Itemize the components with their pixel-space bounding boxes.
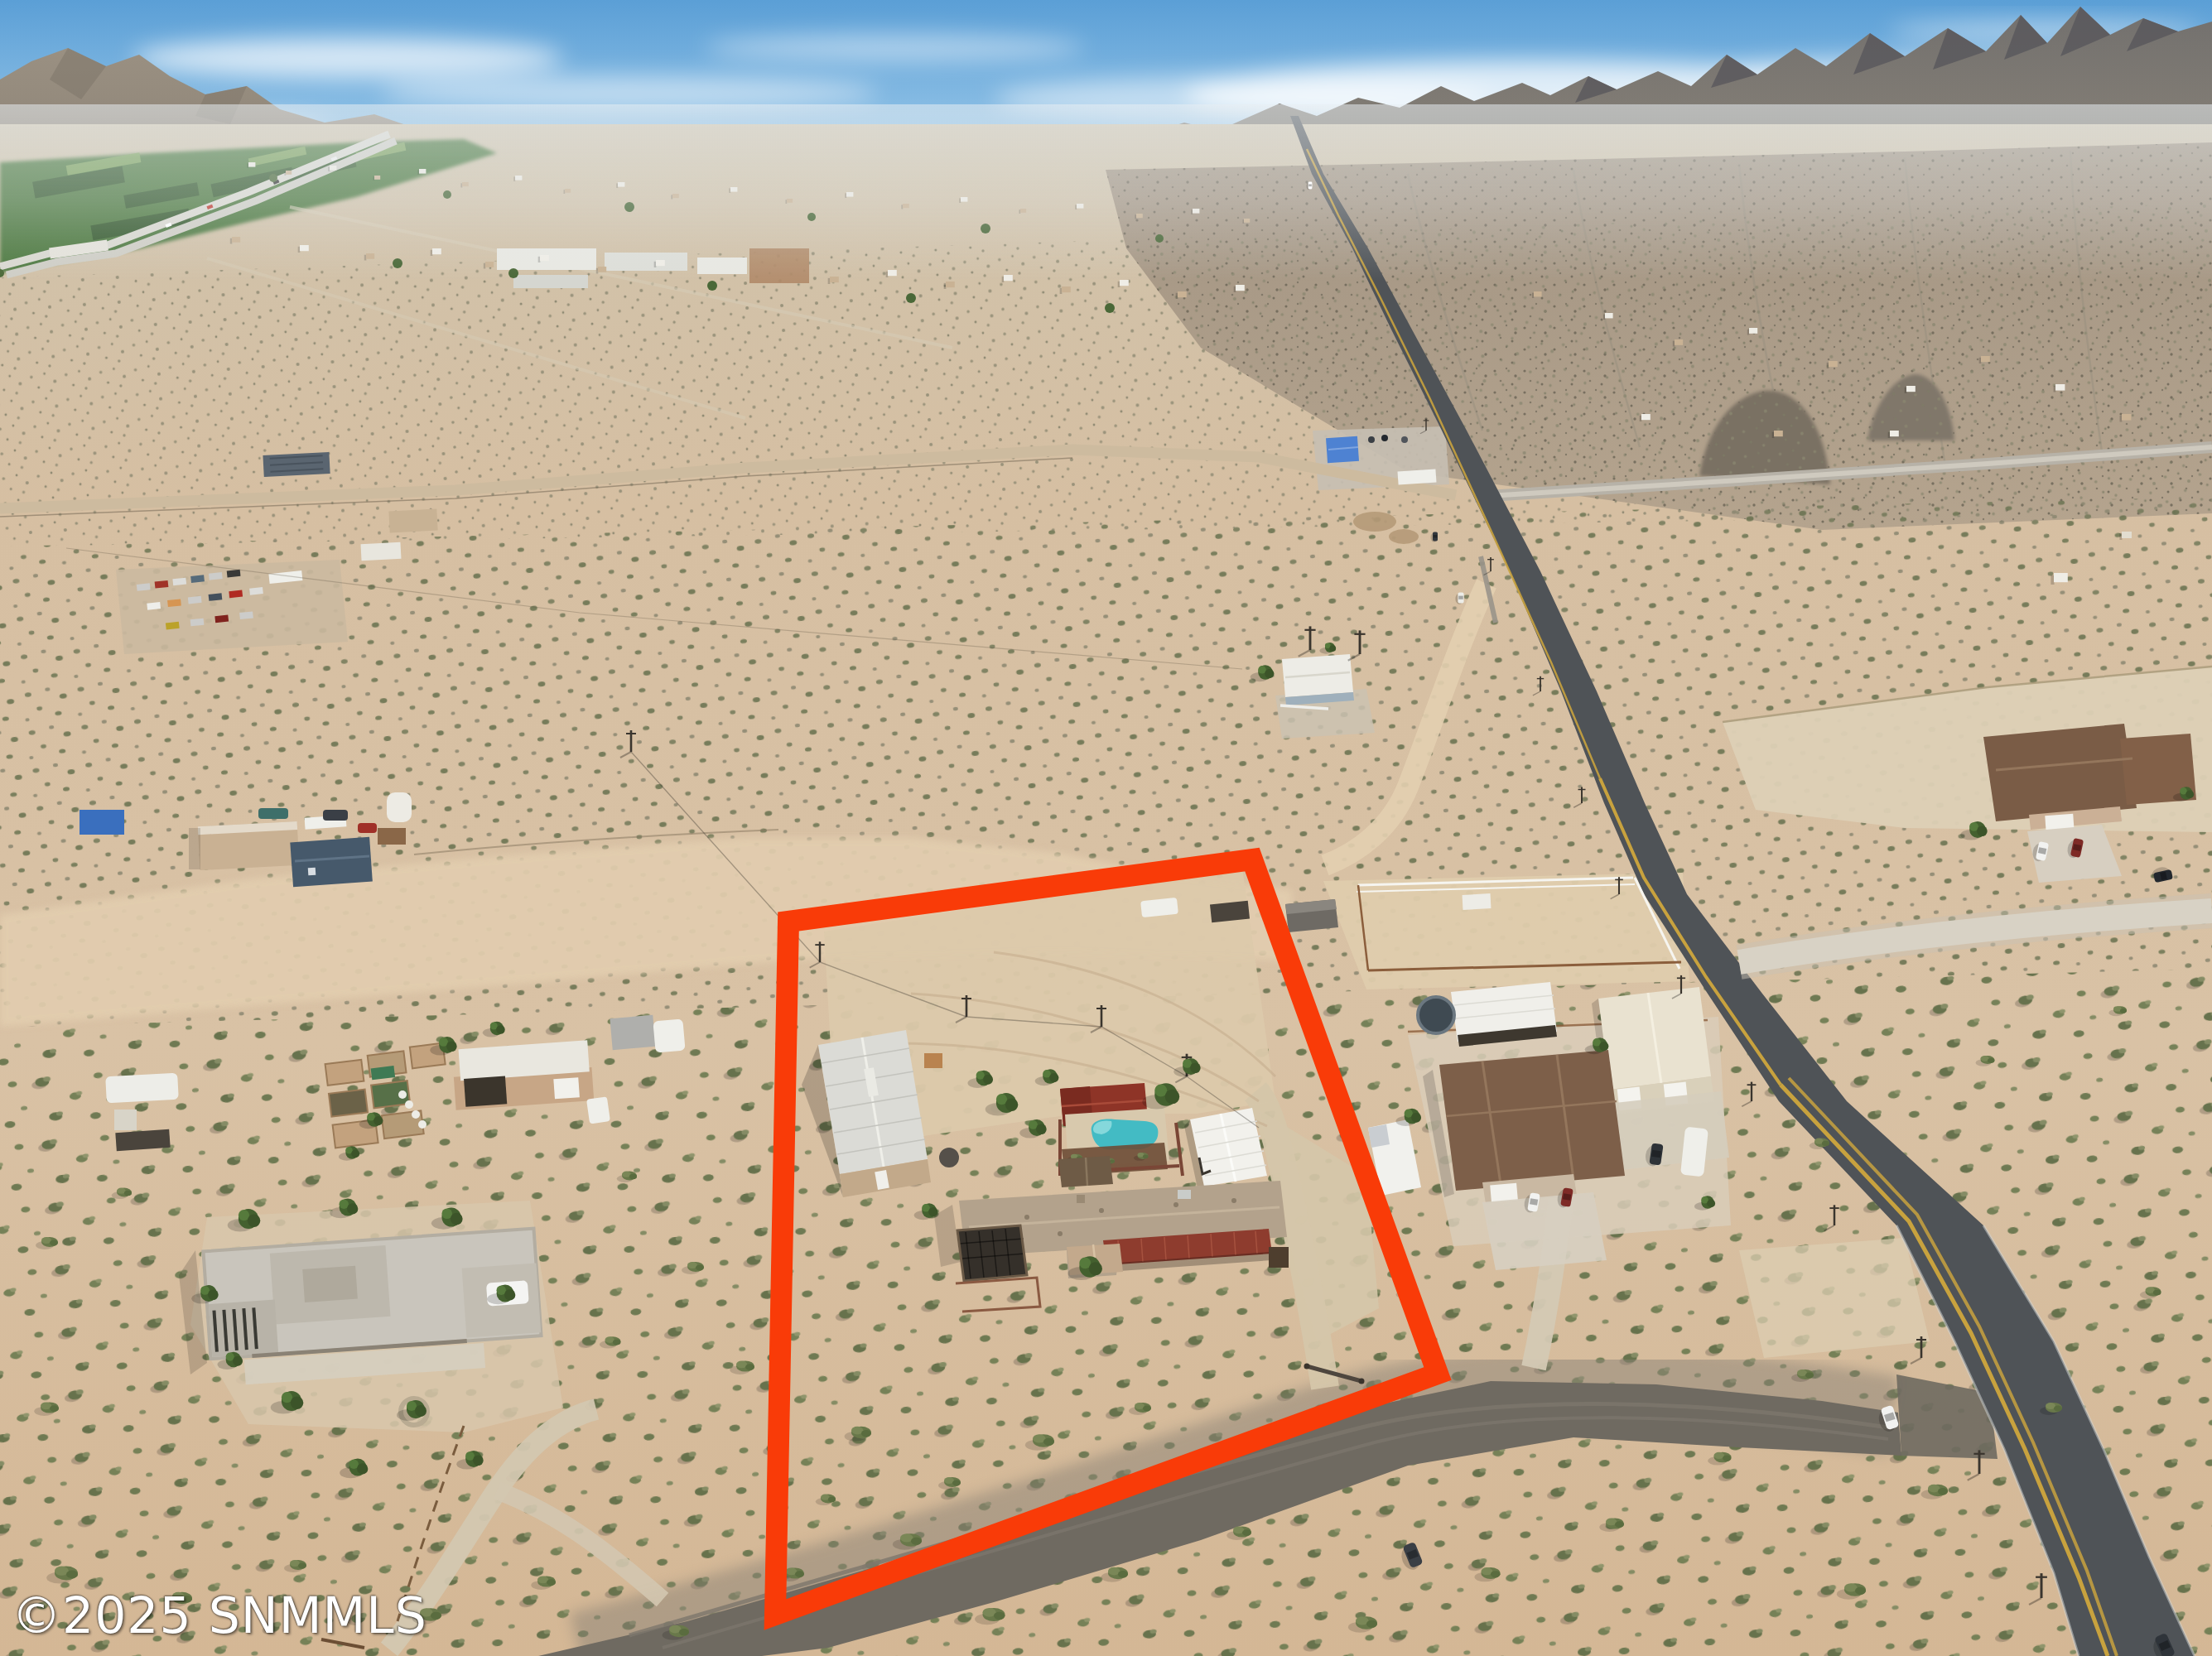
aerial-photo: ©2025 SNMMLS bbox=[0, 0, 2212, 1656]
gazebo bbox=[1058, 1156, 1113, 1187]
adobe-house-west bbox=[452, 1040, 595, 1110]
screened-porch bbox=[957, 1225, 1027, 1281]
corral-pad bbox=[1323, 873, 1689, 989]
blue-tarp bbox=[80, 810, 124, 835]
watermark: ©2025 SNMMLS bbox=[12, 1586, 427, 1644]
bench bbox=[924, 1053, 942, 1068]
white-metal-garage bbox=[1184, 1108, 1267, 1188]
two-story-building bbox=[189, 821, 299, 870]
scene-canvas bbox=[0, 0, 2212, 1656]
solar-house bbox=[263, 452, 330, 477]
horizon-haze bbox=[0, 104, 2212, 282]
storage-box bbox=[1269, 1247, 1289, 1268]
junction-clearing bbox=[1739, 1238, 1930, 1358]
loafing-shed bbox=[1285, 899, 1338, 932]
slate-house bbox=[290, 837, 373, 888]
shade-shelter bbox=[1463, 893, 1492, 910]
trampoline bbox=[1418, 997, 1454, 1033]
white-shed-row bbox=[1451, 982, 1557, 1047]
satellite-dish bbox=[939, 1148, 959, 1167]
